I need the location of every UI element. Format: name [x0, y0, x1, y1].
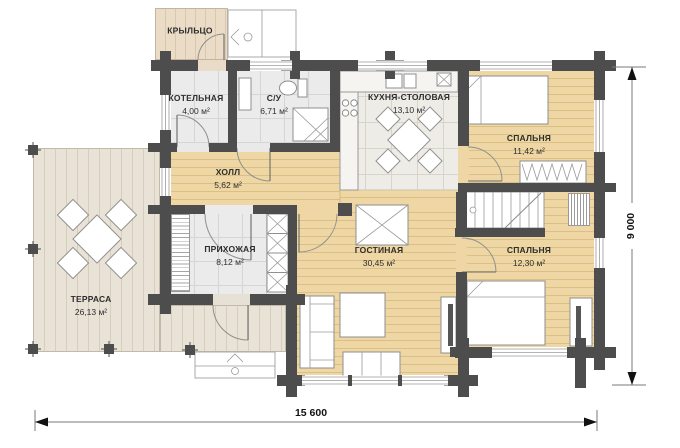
porch-steps [228, 10, 296, 57]
bed1-icon [467, 76, 548, 124]
shower-icon [293, 108, 328, 141]
room-label-living: ГОСТИНАЯ 30,45 м² [355, 244, 404, 270]
room-label-porch: КРЫЛЬЦО [167, 25, 212, 38]
fireplace-icon [356, 205, 408, 245]
sofa-icon [300, 296, 334, 368]
room-label-terrace: ТЕРРАСА 26,13 м² [71, 293, 112, 319]
room-label-kitchen: КУХНЯ-СТОЛОВАЯ 13,10 м² [368, 91, 450, 117]
room-label-boiler: КОТЕЛЬНАЯ 4,00 м² [169, 92, 224, 118]
entrance-steps [195, 352, 275, 378]
wardrobe1-icon [520, 161, 586, 183]
room-label-bedroom2: СПАЛЬНЯ 12,30 м² [507, 244, 551, 270]
closet-icon [267, 214, 288, 292]
room-label-hall: ХОЛЛ 5,62 м² [214, 166, 242, 192]
terrace-table-icon [57, 199, 136, 278]
basin-cabinet-icon [239, 78, 251, 110]
tv-stand-icon [343, 352, 400, 376]
plan-drawing: 15 600 9 000 [0, 0, 680, 448]
terrace-posts [25, 142, 198, 358]
dimension-width-label: 15 600 [295, 407, 327, 419]
room-label-hallway: ПРИХОЖАЯ 8,12 м² [204, 243, 255, 269]
dimension-height-label: 9 000 [625, 213, 637, 239]
room-label-bathroom: С/У 6,71 м² [260, 92, 288, 118]
tv-panel-icon [441, 297, 456, 353]
furniture [57, 71, 592, 376]
bed2-icon [467, 281, 545, 345]
room-label-bedroom1: СПАЛЬНЯ 11,42 м² [507, 132, 551, 158]
staircase-icon [466, 192, 544, 228]
floor-plan: 15 600 9 000 КРЫЛЬЦО КОТЕЛЬНАЯ 4,00 м² С… [0, 0, 680, 448]
coffee-table-icon [340, 293, 385, 337]
